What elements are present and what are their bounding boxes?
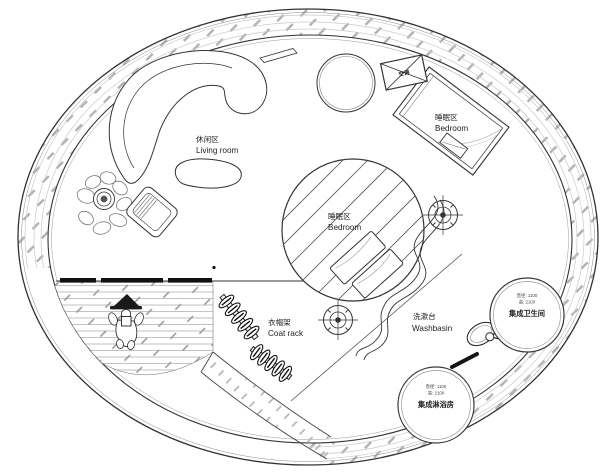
floor-plan-canvas: 睡眠区 Bedroom 睡眠区 Bedroom 空调 (0, 0, 611, 473)
bedroom-platform-label-en: Bedroom (328, 223, 361, 232)
window-bar (101, 278, 163, 283)
bedroom-platform-label-zh: 睡眠区 (328, 212, 351, 221)
bedroom-upper-label-zh: 睡眠区 (435, 113, 458, 122)
living-label-zh: 休闲区 (196, 134, 219, 144)
floor-plan-svg: 睡眠区 Bedroom 睡眠区 Bedroom 空调 (0, 0, 611, 473)
bedroom-upper-label-en: Bedroom (435, 124, 468, 133)
coat-rack-label-zh: 衣帽架 (268, 317, 291, 327)
round-table (317, 54, 375, 112)
window-bar (168, 278, 212, 283)
window-bar (60, 278, 96, 283)
pod-bathroom-name: 集成卫生间 (508, 309, 545, 318)
washbasin-label-en: Washbasin (412, 324, 453, 333)
pod-bathroom: 直径: 1100 高: 2100 集成卫生间 (490, 278, 564, 352)
living-label-en: Living room (196, 146, 239, 155)
wall-end-dot (212, 266, 215, 269)
pod-shower: 直径: 1100 高: 2100 集成淋浴房 (398, 367, 474, 443)
pod-shower-dim1: 直径: 1100 (426, 383, 447, 389)
pod-shower-dim2: 高: 2100 (428, 390, 445, 397)
pod-shower-name: 集成淋浴房 (417, 400, 454, 409)
pod-bathroom-dim1: 直径: 1100 (517, 292, 538, 298)
washbasin-label-zh: 洗漱台 (413, 311, 436, 321)
pod-bathroom-dim2: 高: 2100 (519, 299, 536, 306)
coat-rack-label-en: Coat rack (268, 329, 304, 338)
